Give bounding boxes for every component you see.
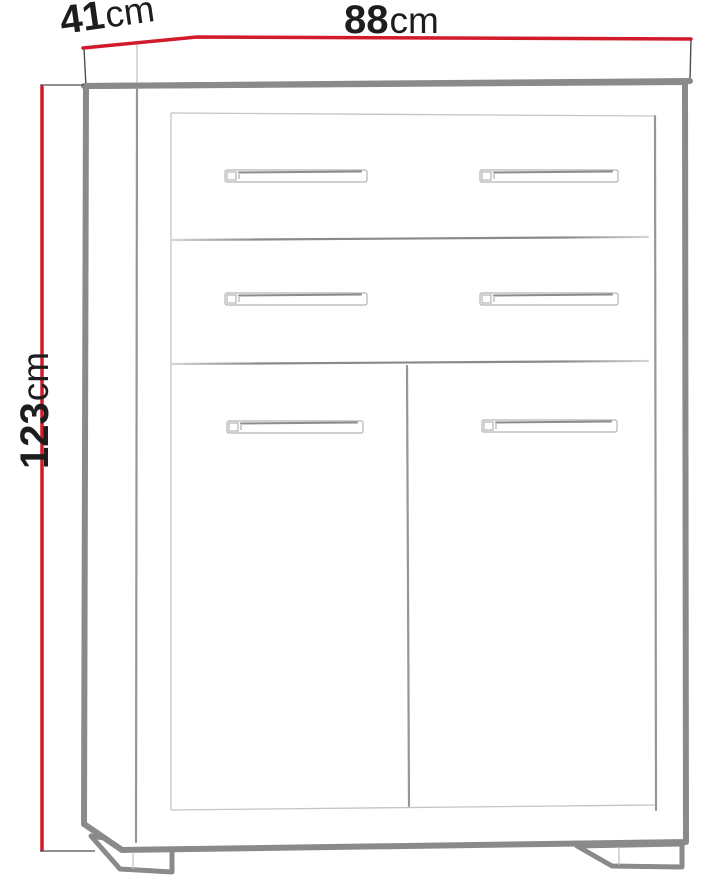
right-side-panel-edge	[655, 116, 656, 810]
door-left-handle	[227, 421, 363, 433]
right-foot	[577, 844, 682, 867]
drawer-2-handle-left	[225, 293, 367, 305]
cabinet-body-outline	[84, 82, 686, 850]
top-panel-left-edge	[84, 48, 86, 87]
height-label: 123cm	[13, 352, 57, 469]
top-panel-right-edge	[690, 39, 691, 81]
drawer-1-handle-left	[225, 170, 367, 182]
left-side-panel-edge	[136, 88, 137, 842]
width-label: 88cm	[344, 0, 439, 42]
cabinet-top-panel	[84, 38, 692, 87]
drawer-1-handle-right	[480, 170, 618, 182]
depth-label: 41cm	[57, 0, 157, 43]
door-right-handle	[482, 420, 617, 432]
furniture-dimension-diagram: 41cm 88cm 123cm	[0, 0, 707, 887]
drawer-2-handle-right	[480, 293, 618, 305]
